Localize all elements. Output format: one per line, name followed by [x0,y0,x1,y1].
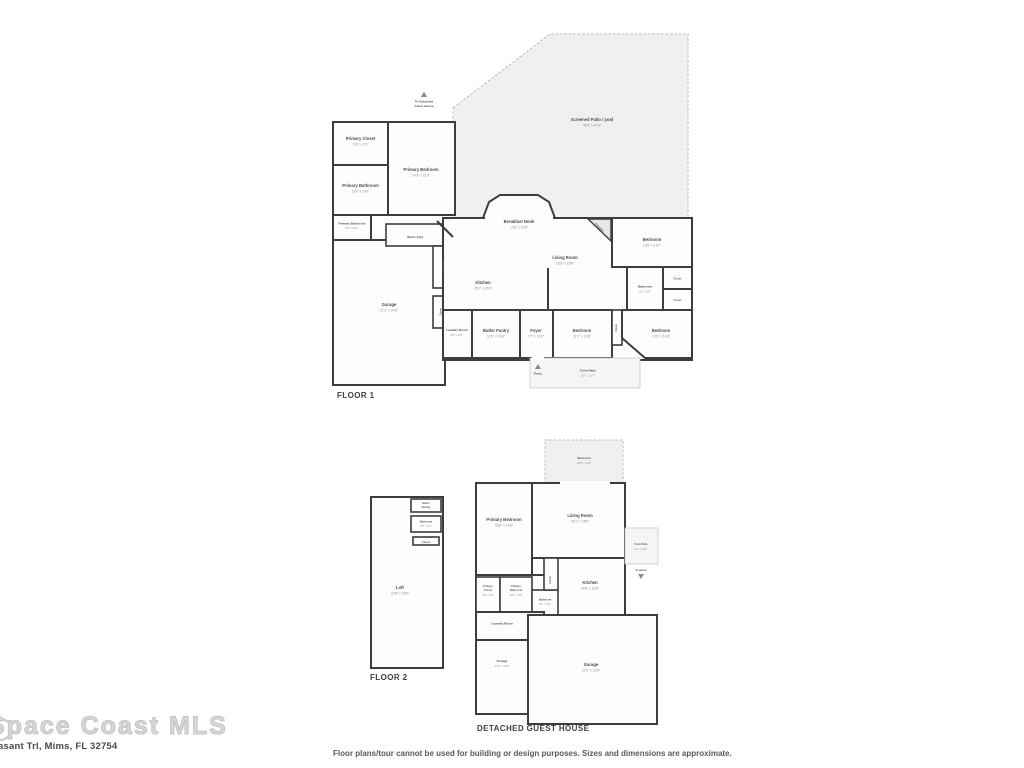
dim-guest-bathroom: 8'1" x 5'8" [539,602,551,606]
label-from-patio: From Patio [634,542,648,546]
dim-garage: 21'3" x 24'8" [380,309,399,313]
dim-guest-kitchen: 14'8" x 13'8" [581,587,600,591]
label-guest-primary-bathroom-2: Bathroom [510,588,523,592]
label-floor2-stairs-2: (Down) [422,505,431,509]
label-closet-small: Closet [439,308,443,316]
to-guest-house-label-2: Guest House [414,104,433,108]
screened-patio-label: Screened Patio / pool [571,117,614,122]
label-primary-bathroom: Primary Bathroom [342,183,379,188]
floor1-room-garage [333,240,445,385]
floor1-title: FLOOR 1 [337,391,374,400]
dim-breakfast-nook: 12'8" x 10'9" [510,226,529,230]
label-bedroom-center: Bedroom [573,328,592,333]
entry-label: Entry [534,372,542,376]
floor1-front-patio-area [530,358,640,388]
label-butler-pantry: Butler Pantry [483,328,510,333]
dim-bathroom-right: 9'2" x 8'8" [639,290,651,294]
label-bedroom-topright: Bedroom [643,237,662,242]
dim-guest-garage-small: 10'8" x 21'8" [495,664,510,668]
mls-logo: Space Coast MLS [0,712,228,741]
label-guest-bathroom: Bathroom [539,598,552,602]
label-floor2-stairs-1: Stairs [422,501,430,505]
dim-guest-garage-large: 21'8" x 22'8" [582,669,601,673]
label-floor2-closet: Closet [422,540,430,544]
guest-house-plan: Sunroom 16'8" x 9'11" From Patio 8'1" x … [466,435,671,730]
floor1-entry-opening [532,356,544,360]
label-closet-a: Closet [674,277,682,281]
dim-living-room: 16'8" x 18'8" [556,262,575,266]
label-closet-mid: Closet [614,324,618,332]
label-living-room: Living Room [552,255,578,260]
label-guest-primary-closet-1: Primary [483,584,493,588]
label-laundry: Laundry Room [446,328,468,332]
label-bathroom-right: Bathroom [638,285,653,289]
label-guest-primary-bathroom-1: Primary [511,584,521,588]
label-guest-laundry: Laundry Room [491,622,513,626]
front-patio-label: Front Patio [580,369,596,373]
label-breakfast-nook: Breakfast Nook [504,219,535,224]
dim-guest-living-room: 20'1" x 18'8" [571,520,590,524]
dim-floor2-bathroom: 5'8" x 8'1" [420,524,432,528]
label-primary-bedroom: Primary Bedroom [403,167,438,172]
label-garage: Garage [382,302,397,307]
label-guest-closet: Closet [548,576,552,584]
dim-bedroom-bottomright: 13'9" x 14'8" [652,335,671,339]
label-floor2-loft: Loft [396,585,405,590]
to-guest-house-arrow-icon [421,92,427,98]
dim-primary-bathroom: 11'8" x 14'5" [352,190,371,194]
label-guest-primary-closet-2: Closet [484,588,492,592]
guest-from-patio-area [625,528,658,564]
dim-from-patio: 8'1" x 10'1" [634,547,647,551]
floor1-breakfast-bay [483,195,555,218]
label-sunroom: Sunroom [577,456,591,460]
dim-bedroom-topright: 13'8" x 13'7" [643,244,662,248]
label-closet-b: Closet [674,298,682,302]
screened-patio-area [453,34,688,218]
label-primary-closet: Primary Closet [346,136,376,141]
dim-primary-bathroom2: 6'8" x 5'10" [345,226,358,230]
label-kitchen: Kitchen [475,280,491,285]
dim-guest-primary-bathroom: 10'1" x 8'8" [509,593,522,597]
label-floor2-bathroom: Bathroom [420,520,433,524]
dim-laundry: 9'8" x 13'1" [450,333,463,337]
dim-floor2-loft: 10'8" x 29'9" [391,592,410,596]
label-guest-kitchen: Kitchen [582,580,598,585]
label-bedroom-bottomright: Bedroom [652,328,671,333]
floor2-title: FLOOR 2 [370,673,407,682]
screened-patio-dim: 46'8" x 41'8" [583,124,602,128]
to-house-arrow-icon [638,574,644,579]
label-bathroom-small: Bathroom [441,260,445,273]
floor1-plan: Screened Patio / pool 46'8" x 41'8" To D… [330,20,700,410]
floor2-room-bathroom [411,516,441,532]
label-guest-garage-large: Garage [584,662,599,667]
dim-butler-pantry: 12'9" x 14'8" [487,335,506,339]
listing-address: asant Trl, Mims, FL 32754 [0,741,117,752]
guest-sunroom-opening [560,481,610,485]
dim-guest-primary-bedroom: 16'8" x 14'8" [495,524,514,528]
dim-foyer: 7'2" x 13'8" [528,335,545,339]
floor2-plan: Stairs (Down) Bathroom 5'8" x 8'1" Close… [363,490,448,675]
guest-room-closet [544,558,558,590]
front-patio-dim: 28'7" x 10'7" [581,374,596,378]
disclaimer-text: Floor plans/tour cannot be used for buil… [333,749,732,758]
label-guest-living-room: Living Room [567,513,593,518]
label-foyer: Foyer [530,328,542,333]
label-guest-garage-small: Garage [497,659,508,663]
guest-house-title: DETACHED GUEST HOUSE [477,724,589,733]
dim-bedroom-center: 11'2" x 13'8" [573,335,592,339]
dim-kitchen: 15'1" x 15'9" [474,287,493,291]
floor1-room-bathroom-right [627,267,663,310]
label-primary-bathroom2: Primary Bathroom [339,222,366,226]
guest-room-garage-small [476,640,528,714]
dim-primary-bedroom: 14'9" x 21'9" [412,174,431,178]
dim-primary-closet: 11'8" x 6'8" [352,143,369,147]
floor1-room-bedroom-topright [612,218,692,267]
dim-guest-primary-closet: 4'8" x 7'5" [482,593,494,597]
label-to-house: To House [635,568,647,572]
dim-sunroom: 16'8" x 9'11" [577,461,592,465]
label-stairs-up: Stairs (Up) [407,235,423,239]
label-guest-primary-bedroom: Primary Bedroom [486,517,521,522]
